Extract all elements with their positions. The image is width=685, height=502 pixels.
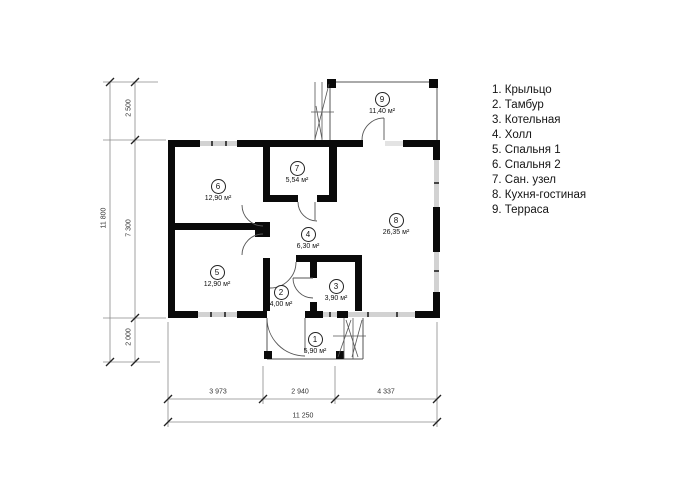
room-area-5: 12,90 м²: [167, 281, 267, 288]
dim-bottom-seg-3: 4 337: [377, 389, 395, 396]
room-number-1: 1: [308, 332, 323, 347]
dim-bottom-total: 11 250: [293, 413, 314, 420]
dim-bottom-seg-2: 2 940: [291, 389, 309, 396]
room-label-9: 9 11,40 м²: [332, 89, 432, 115]
dim-left-total: 11 800: [101, 208, 108, 229]
legend-item-1: 1. Крыльцо: [492, 83, 586, 98]
floorplan-canvas: 1 5,90 м² 2 4,00 м² 3 3,90 м² 4 6,30 м² …: [0, 0, 685, 502]
dim-left-seg-2: 7 300: [126, 219, 133, 237]
legend-item-9: 9. Терраса: [492, 203, 586, 218]
room-number-4: 4: [301, 227, 316, 242]
legend-item-3: 3. Котельная: [492, 113, 586, 128]
room-label-4: 4 6,30 м²: [258, 224, 358, 250]
dim-left-seg-1: 2 500: [126, 99, 133, 117]
legend-item-8: 8. Кухня-гостиная: [492, 188, 586, 203]
room-label-3: 3 3,90 м²: [286, 276, 386, 302]
room-number-5: 5: [210, 265, 225, 280]
terrace-stairs: [311, 82, 334, 140]
room-label-5: 5 12,90 м²: [167, 262, 267, 288]
room-area-2: 4,00 м²: [231, 301, 331, 308]
floorplan-drawing: [0, 0, 685, 502]
room-area-6: 12,90 м²: [168, 195, 268, 202]
room-label-8: 8 26,35 м²: [346, 210, 446, 236]
room-number-3: 3: [329, 279, 344, 294]
room-label-7: 7 5,54 м²: [247, 158, 347, 184]
dim-bottom-seg-1: 3 973: [209, 389, 227, 396]
legend-item-4: 4. Холл: [492, 128, 586, 143]
room-area-9: 11,40 м²: [332, 108, 432, 115]
legend-item-7: 7. Сан. узел: [492, 173, 586, 188]
dimension-lines: [103, 82, 437, 427]
room-area-1: 5,90 м²: [265, 348, 365, 355]
room-area-7: 5,54 м²: [247, 177, 347, 184]
dim-left-seg-3: 2 000: [126, 328, 133, 346]
room-number-8: 8: [389, 213, 404, 228]
legend-item-5: 5. Спальня 1: [492, 143, 586, 158]
room-legend: 1. Крыльцо 2. Тамбур 3. Котельная 4. Хол…: [492, 83, 586, 218]
room-area-3: 3,90 м²: [286, 295, 386, 302]
legend-item-6: 6. Спальня 2: [492, 158, 586, 173]
room-number-9: 9: [375, 92, 390, 107]
room-number-7: 7: [290, 161, 305, 176]
room-label-1: 1 5,90 м²: [265, 329, 365, 355]
dimension-ticks: [106, 78, 441, 426]
room-area-8: 26,35 м²: [346, 229, 446, 236]
legend-item-2: 2. Тамбур: [492, 98, 586, 113]
room-number-6: 6: [211, 179, 226, 194]
room-area-4: 6,30 м²: [258, 243, 358, 250]
terrace-posts: [327, 79, 438, 88]
